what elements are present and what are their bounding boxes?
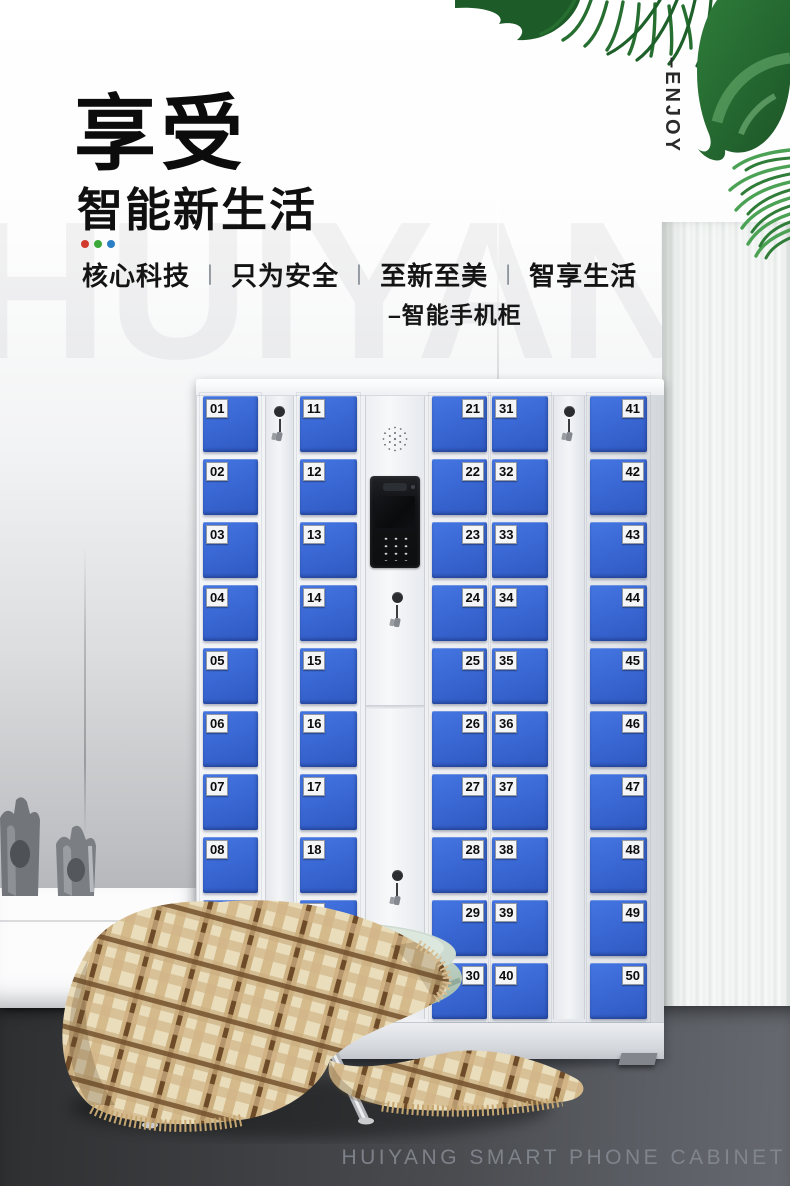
door-number-label: 37	[495, 777, 517, 796]
door-number-label: 18	[303, 840, 325, 859]
locker-door-17: 17	[300, 774, 357, 830]
locker-door-48: 48	[590, 837, 647, 893]
door-column-41-50: 41424344454647484950	[590, 396, 647, 1019]
door-number-label: 36	[495, 714, 517, 733]
stool-with-blanket	[30, 880, 590, 1186]
locker-door-22: 22	[432, 459, 487, 515]
keypad	[379, 533, 411, 561]
locker-door-15: 15	[300, 648, 357, 704]
tagline-separator: 丨	[190, 263, 231, 288]
door-number-label: 08	[206, 840, 228, 859]
door-number-label: 06	[206, 714, 228, 733]
door-number-label: 47	[622, 777, 644, 796]
locker-door-41: 41	[590, 396, 647, 452]
door-number-label: 13	[303, 525, 325, 544]
locker-door-35: 35	[492, 648, 548, 704]
locker-door-16: 16	[300, 711, 357, 767]
locker-door-01: 01	[203, 396, 258, 452]
locker-door-13: 13	[300, 522, 357, 578]
key-lock-icon	[564, 406, 575, 417]
tagline-separator: 丨	[339, 263, 380, 288]
vertical-enjoy-label: –ENJOY	[660, 57, 683, 154]
locker-door-05: 05	[203, 648, 258, 704]
locker-door-33: 33	[492, 522, 548, 578]
locker-door-06: 06	[203, 711, 258, 767]
tagline-item: 只为安全	[231, 261, 339, 291]
control-panel	[370, 476, 420, 568]
locker-door-44: 44	[590, 585, 647, 641]
locker-door-47: 47	[590, 774, 647, 830]
locker-door-26: 26	[432, 711, 487, 767]
door-number-label: 03	[206, 525, 228, 544]
door-number-label: 15	[303, 651, 325, 670]
door-number-label: 35	[495, 651, 517, 670]
door-number-label: 26	[462, 714, 484, 733]
locker-door-21: 21	[432, 396, 487, 452]
tagline-separator: 丨	[488, 263, 529, 288]
locker-door-37: 37	[492, 774, 548, 830]
palm-leaves-decor	[455, 0, 790, 260]
locker-door-04: 04	[203, 585, 258, 641]
door-number-label: 04	[206, 588, 228, 607]
locker-door-03: 03	[203, 522, 258, 578]
tagline-item: 至新至美	[380, 261, 488, 291]
door-number-label: 33	[495, 525, 517, 544]
hero-tagline: 核心科技丨只为安全丨至新至美丨智享生活	[82, 256, 637, 293]
locker-door-36: 36	[492, 711, 548, 767]
locker-door-31: 31	[492, 396, 548, 452]
speaker-grille-icon	[380, 424, 410, 454]
door-number-label: 27	[462, 777, 484, 796]
locker-door-50: 50	[590, 963, 647, 1019]
door-number-label: 31	[495, 399, 517, 418]
locker-door-27: 27	[432, 774, 487, 830]
door-number-label: 02	[206, 462, 228, 481]
door-number-label: 28	[462, 840, 484, 859]
door-number-label: 41	[622, 399, 644, 418]
key-lock-icon	[274, 406, 285, 417]
locker-door-24: 24	[432, 585, 487, 641]
door-number-label: 11	[303, 399, 325, 418]
tagline-item: 核心科技	[82, 261, 190, 291]
door-number-label: 24	[462, 588, 484, 607]
door-number-label: 17	[303, 777, 325, 796]
door-number-label: 23	[462, 525, 484, 544]
door-number-label: 21	[462, 399, 484, 418]
door-number-label: 25	[462, 651, 484, 670]
door-number-label: 34	[495, 588, 517, 607]
poster-canvas: HUIYANG 01020304050607080910 11121314151…	[0, 0, 790, 1186]
door-number-label: 22	[462, 462, 484, 481]
locker-door-43: 43	[590, 522, 647, 578]
door-number-label: 38	[495, 840, 517, 859]
locker-door-11: 11	[300, 396, 357, 452]
door-number-label: 14	[303, 588, 325, 607]
door-number-label: 45	[622, 651, 644, 670]
door-number-label: 05	[206, 651, 228, 670]
camera-lens-icon	[383, 483, 407, 491]
tagline-item: 智享生活	[529, 261, 637, 291]
locker-door-34: 34	[492, 585, 548, 641]
locker-door-32: 32	[492, 459, 548, 515]
cabinet-foot-right	[619, 1053, 658, 1065]
hero-title: 享受	[74, 94, 248, 176]
locker-door-46: 46	[590, 711, 647, 767]
door-number-label: 07	[206, 777, 228, 796]
control-door-lock-icon	[392, 592, 403, 603]
door-number-label: 46	[622, 714, 644, 733]
sheer-curtain	[662, 222, 790, 1040]
door-number-label: 43	[622, 525, 644, 544]
locker-door-12: 12	[300, 459, 357, 515]
accent-dot	[107, 240, 115, 248]
door-number-label: 16	[303, 714, 325, 733]
door-number-label: 49	[622, 903, 644, 922]
locker-door-14: 14	[300, 585, 357, 641]
door-number-label: 32	[495, 462, 517, 481]
door-number-label: 12	[303, 462, 325, 481]
door-number-label: 01	[206, 399, 228, 418]
cabinet-top-panel	[196, 379, 664, 396]
product-note: –智能手机柜	[388, 296, 522, 330]
door-number-label: 48	[622, 840, 644, 859]
accent-dots	[81, 240, 115, 248]
locker-door-45: 45	[590, 648, 647, 704]
locker-door-25: 25	[432, 648, 487, 704]
locker-door-49: 49	[590, 900, 647, 956]
door-number-label: 44	[622, 588, 644, 607]
hero-subtitle: 智能新生活	[77, 187, 317, 233]
panel-screen	[375, 496, 415, 528]
accent-dot	[94, 240, 102, 248]
accent-dot	[81, 240, 89, 248]
center-column-divider	[366, 705, 424, 709]
locker-door-23: 23	[432, 522, 487, 578]
door-number-label: 42	[622, 462, 644, 481]
floor-caption: HUIYANG SMART PHONE CABINET	[341, 1146, 786, 1170]
locker-door-42: 42	[590, 459, 647, 515]
locker-door-02: 02	[203, 459, 258, 515]
locker-door-07: 07	[203, 774, 258, 830]
door-number-label: 50	[622, 966, 644, 985]
